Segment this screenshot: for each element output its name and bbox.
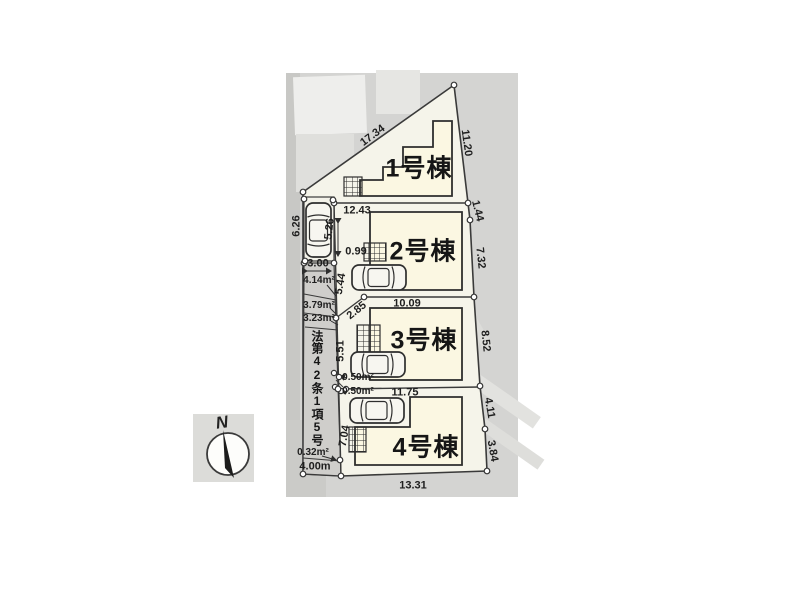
dim-lot4-top: 11.75: [392, 388, 419, 399]
entrance-hatch-icon: [349, 427, 366, 452]
dim-parking-length: 5.26: [323, 218, 336, 240]
car-icon: [350, 398, 404, 423]
dim-right-edge-5: 4.11: [482, 397, 496, 419]
dim-right-edge-6: 3.84: [485, 439, 500, 462]
north-indicator-label: N: [215, 412, 230, 434]
dim-lot3-top: 10.09: [393, 299, 421, 310]
dim-bottom-edge: 13.31: [399, 481, 427, 492]
corner-area-1: 0.50m²: [342, 373, 374, 383]
dim-right-edge-1: 11.20: [459, 129, 474, 157]
dim-right-edge-4: 8.52: [478, 330, 491, 352]
building-2-label: 2号棟: [390, 240, 457, 265]
car-icon: [352, 265, 406, 290]
building-1-label: 1号棟: [386, 157, 453, 182]
dim-road-width: 3.00: [307, 259, 328, 270]
road-share-area-3: 3.23m²: [303, 314, 335, 324]
dim-road-seg-3: 5.51: [336, 340, 347, 361]
road-share-area-1: 4.14m²: [303, 276, 335, 286]
corner-area-3: 0.32m²: [297, 448, 329, 458]
building-4-label: 4号棟: [393, 436, 460, 461]
building-3-label: 3号棟: [391, 329, 458, 354]
dim-lot2-top: 12.43: [343, 206, 371, 217]
dim-left-edge: 6.26: [292, 215, 303, 236]
dim-parking-gap: 0.99: [345, 247, 366, 258]
entrance-hatch-icon: [344, 177, 362, 196]
site-plan-page: 17.34 11.20 1.44 7.32 8.52 4.11 3.84 6.2…: [0, 0, 800, 600]
dim-road-bottom: 4.00m: [299, 462, 330, 473]
dim-right-edge-3: 7.32: [473, 247, 486, 269]
entrance-hatch-icon: [364, 243, 386, 261]
road-share-area-2: 3.79m²: [303, 301, 335, 311]
road-designation-label: 法第42条1項5号: [310, 330, 324, 446]
corner-area-2: 0.50m²: [342, 387, 374, 397]
entrance-hatch-icon: [357, 325, 380, 352]
